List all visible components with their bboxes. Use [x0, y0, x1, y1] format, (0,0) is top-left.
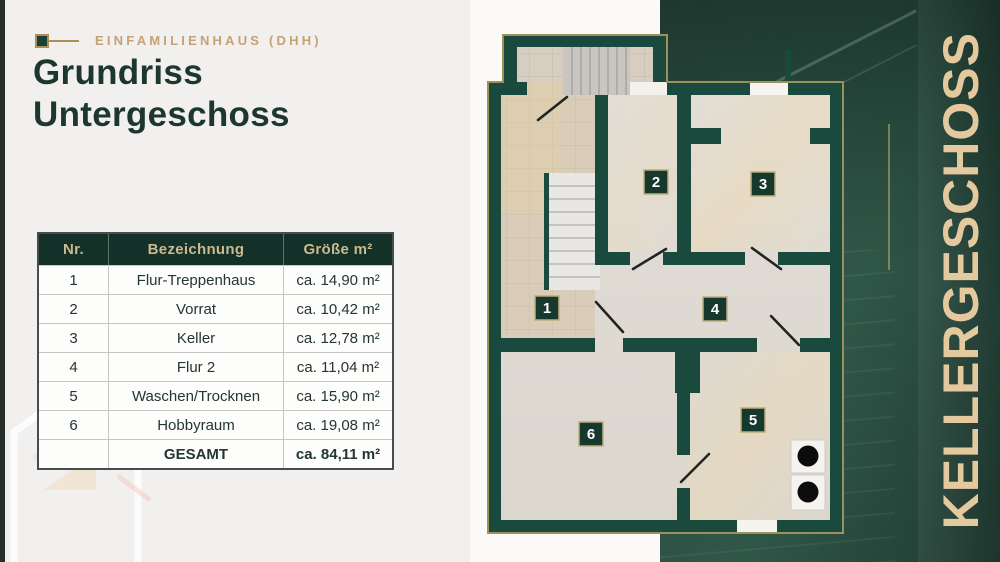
- marker-line: [49, 40, 79, 42]
- svg-text:6: 6: [587, 426, 595, 443]
- page-title-line1: Grundriss: [33, 52, 290, 94]
- total-size: ca. 84,11 m²: [284, 440, 392, 468]
- cell-nr: 5: [39, 382, 109, 410]
- eyebrow: EINFAMILIENHAUS (DHH): [35, 33, 322, 48]
- room-badge-5: 5: [741, 408, 765, 432]
- cell-name: Vorrat: [109, 295, 284, 323]
- total-label: GESAMT: [109, 440, 284, 468]
- table-row: 3 Keller ca. 12,78 m²: [39, 323, 392, 352]
- cell-name: Flur-Treppenhaus: [109, 266, 284, 294]
- cell-name: Waschen/Trocknen: [109, 382, 284, 410]
- cell-nr: 2: [39, 295, 109, 323]
- cell-name: Flur 2: [109, 353, 284, 381]
- room-badge-4: 4: [703, 297, 727, 321]
- cell-size: ca. 12,78 m²: [284, 324, 392, 352]
- col-header-size: Größe m²: [284, 234, 392, 265]
- table-row: 5 Waschen/Trocknen ca. 15,90 m²: [39, 381, 392, 410]
- svg-text:3: 3: [759, 176, 767, 193]
- table-total-row: GESAMT ca. 84,11 m²: [39, 439, 392, 468]
- col-header-name: Bezeichnung: [109, 234, 284, 265]
- svg-text:5: 5: [749, 412, 757, 429]
- vertical-title: KELLERGESCHOSS: [932, 32, 990, 529]
- cell-name: Hobbyraum: [109, 411, 284, 439]
- svg-text:2: 2: [652, 174, 660, 191]
- cell-size: ca. 15,90 m²: [284, 382, 392, 410]
- table-row: 6 Hobbyraum ca. 19,08 m²: [39, 410, 392, 439]
- eyebrow-label: EINFAMILIENHAUS (DHH): [95, 33, 322, 48]
- rooms-table: Nr. Bezeichnung Größe m² 1 Flur-Treppenh…: [37, 232, 394, 470]
- table-row: 4 Flur 2 ca. 11,04 m²: [39, 352, 392, 381]
- cell-size: ca. 14,90 m²: [284, 266, 392, 294]
- room-badge-3: 3: [751, 172, 775, 196]
- cell-size: ca. 11,04 m²: [284, 353, 392, 381]
- cell-name: Keller: [109, 324, 284, 352]
- cell-nr: 1: [39, 266, 109, 294]
- cell-size: ca. 19,08 m²: [284, 411, 392, 439]
- room-badge-6: 6: [579, 422, 603, 446]
- floor-plan: 1 2 3 4 5 6: [483, 30, 848, 535]
- panel-gold-line: [888, 124, 890, 270]
- upper-stairs: [563, 47, 630, 95]
- room-badge-2: 2: [644, 170, 668, 194]
- svg-text:1: 1: [543, 300, 551, 317]
- cell-nr: 3: [39, 324, 109, 352]
- cell-nr: 4: [39, 353, 109, 381]
- svg-text:4: 4: [711, 301, 720, 318]
- slide: KELLERGESCHOSS EINFAMILIENHAUS (DHH) Gru…: [0, 0, 1000, 562]
- page-title-line2: Untergeschoss: [33, 94, 290, 136]
- page-title: Grundriss Untergeschoss: [33, 52, 290, 136]
- cell-nr-empty: [39, 440, 109, 468]
- col-header-nr: Nr.: [39, 234, 109, 265]
- washer-dryer-icon: [791, 440, 825, 510]
- table-row: 2 Vorrat ca. 10,42 m²: [39, 294, 392, 323]
- square-marker-icon: [35, 34, 49, 48]
- room-badge-1: 1: [535, 296, 559, 320]
- cell-nr: 6: [39, 411, 109, 439]
- left-edge-bar: [0, 0, 5, 562]
- cell-size: ca. 10,42 m²: [284, 295, 392, 323]
- table-header-row: Nr. Bezeichnung Größe m²: [39, 234, 392, 265]
- lower-stairs: [544, 173, 600, 290]
- table-row: 1 Flur-Treppenhaus ca. 14,90 m²: [39, 265, 392, 294]
